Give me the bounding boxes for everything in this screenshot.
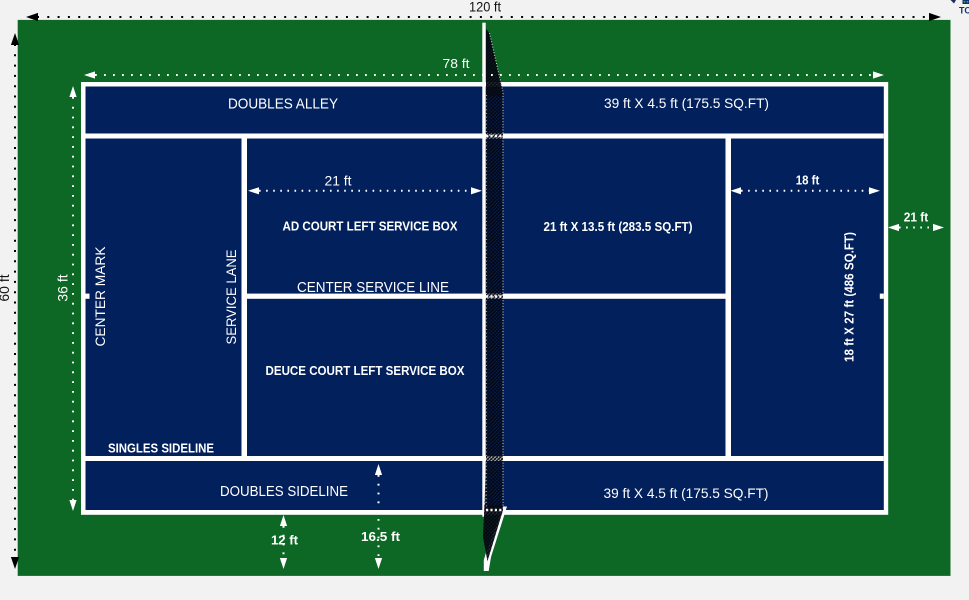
svg-text:DOUBLES SIDELINE: DOUBLES SIDELINE bbox=[220, 484, 348, 500]
svg-text:TO: TO bbox=[959, 6, 969, 16]
svg-text:21 ft X 13.5 ft (283.5 SQ.FT): 21 ft X 13.5 ft (283.5 SQ.FT) bbox=[544, 219, 693, 234]
svg-text:CENTER SERVICE LINE: CENTER SERVICE LINE bbox=[297, 280, 449, 296]
svg-text:SINGLES SIDELINE: SINGLES SIDELINE bbox=[108, 441, 214, 456]
svg-text:18 ft: 18 ft bbox=[796, 173, 820, 187]
svg-text:36 ft: 36 ft bbox=[55, 274, 71, 301]
svg-text:21 ft: 21 ft bbox=[904, 210, 929, 225]
svg-text:AD COURT LEFT SERVICE BOX: AD COURT LEFT SERVICE BOX bbox=[283, 219, 458, 234]
svg-text:DEUCE COURT LEFT SERVICE BOX: DEUCE COURT LEFT SERVICE BOX bbox=[266, 363, 465, 378]
svg-text:60 ft: 60 ft bbox=[0, 274, 12, 301]
svg-text:39 ft X 4.5 ft (175.5 SQ.FT): 39 ft X 4.5 ft (175.5 SQ.FT) bbox=[604, 95, 769, 111]
svg-text:16.5 ft: 16.5 ft bbox=[361, 529, 401, 544]
svg-text:21 ft: 21 ft bbox=[325, 172, 352, 188]
svg-text:120 ft: 120 ft bbox=[469, 0, 501, 14]
svg-text:12 ft: 12 ft bbox=[271, 533, 299, 548]
svg-text:CENTER MARK: CENTER MARK bbox=[92, 246, 108, 347]
svg-text:18 ft X 27 ft (486 SQ.FT): 18 ft X 27 ft (486 SQ.FT) bbox=[843, 232, 857, 362]
svg-text:78 ft: 78 ft bbox=[443, 57, 471, 71]
svg-text:39 ft X 4.5 ft (175.5 SQ.FT): 39 ft X 4.5 ft (175.5 SQ.FT) bbox=[604, 485, 769, 501]
svg-text:SERVICE LANE: SERVICE LANE bbox=[223, 250, 239, 345]
svg-text:DOUBLES ALLEY: DOUBLES ALLEY bbox=[228, 95, 338, 112]
